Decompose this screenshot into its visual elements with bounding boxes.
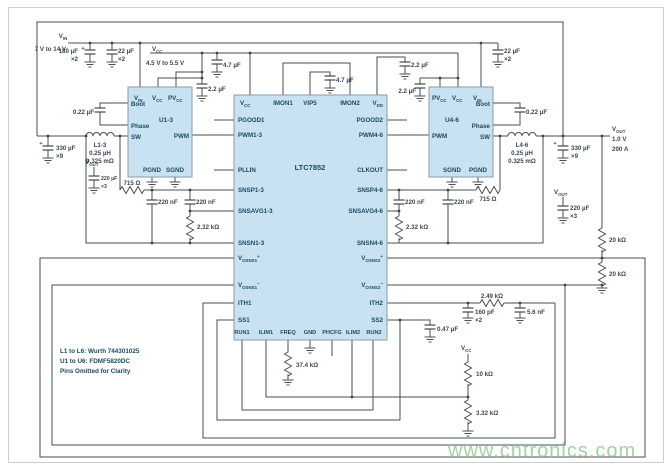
ic-pin-ith2: ITH2	[370, 300, 384, 307]
ic-pin-imon1: IMON1	[273, 100, 293, 107]
r10k-value: 10 kΩ	[476, 371, 493, 378]
ic-pin-snsn13: SNSN1-3	[238, 240, 265, 247]
ic-pin-ith1: ITH1	[238, 300, 252, 307]
r37k4-value: 37.4 kΩ	[296, 362, 318, 369]
ic-part-number: LTC7852	[295, 163, 326, 172]
ic-pin-run2: RUN2	[366, 330, 381, 336]
u13-pin-pwm: PWM	[174, 133, 189, 140]
ic-pin-ss1: SS1	[238, 317, 250, 324]
c180-value: 180 µF	[59, 48, 79, 55]
ic-pin-phcfg: PHCFG	[322, 330, 342, 336]
r715l-value: 715 Ω	[123, 180, 140, 187]
cboot-left-value: 0.22 µF	[73, 109, 94, 116]
u46-pin-pwm: PWM	[432, 133, 447, 140]
ic-pin-pgood1: PGOOD1	[238, 117, 265, 124]
ic-pin-snsp13: SNSP1-3	[238, 187, 264, 194]
c180-mult: ×2	[71, 56, 79, 63]
ic-pin-ilim1: ILIM1	[259, 330, 273, 336]
u46-pin-boot: Boot	[476, 101, 490, 108]
ic-pin-snsn46: SNSN4-6	[357, 240, 384, 247]
note-line-1: L1 to L6: Wurth 744301025	[60, 348, 140, 355]
ic-pin-freq: FREQ	[280, 330, 296, 336]
c220n-r2-value: 220 nF	[405, 199, 425, 206]
watermark: www.cntronics.com	[447, 440, 636, 462]
ic-pin-snsavg13: SNSAVG1-3	[238, 208, 273, 215]
u13-pin-sw: SW	[131, 134, 141, 141]
u46-pin-phase: Phase	[472, 123, 491, 130]
r715r-value: 715 Ω	[479, 196, 496, 203]
c160p-value: 160 pF	[475, 309, 495, 316]
u13-name: U1-3	[159, 117, 173, 124]
l46-name: L4-6	[516, 142, 529, 149]
c2u2l-value: 2.2 µF	[208, 86, 226, 93]
vout-voltage-label: 1.0 V	[612, 136, 627, 143]
l13-dcr: 0.325 mΩ	[86, 158, 114, 165]
c330l-value: 330 µF	[56, 145, 76, 152]
c180-polarity: +	[81, 46, 84, 52]
ic-pin-ilim2: ILIM2	[346, 330, 360, 336]
l46-value: 0.25 µH	[511, 150, 533, 157]
c160p-mult: ×2	[475, 317, 483, 324]
r20k2-value: 20 kΩ	[609, 271, 626, 278]
c22r-mult: ×2	[504, 56, 512, 63]
r20k1-value: 20 kΩ	[609, 237, 626, 244]
c5n6-value: 5.6 nF	[527, 309, 545, 316]
c4u7-vip5-value: 4.7 µF	[336, 77, 354, 84]
schematic-page: VIN 7 V to 14 V VCC 4.5 V to 5.5 V VOUT …	[0, 0, 671, 470]
c220n-r1-value: 220 nF	[454, 199, 474, 206]
l13-name: L1-3	[94, 142, 107, 149]
ic-pin-gnd: GND	[304, 330, 316, 336]
c220n-l2-value: 220 nF	[196, 199, 216, 206]
u13-pin-pgnd: PGND	[143, 167, 161, 174]
ic-pin-pllin: PLLIN	[238, 167, 256, 174]
c330l-mult: ×9	[56, 153, 64, 160]
u13-pin-phase: Phase	[131, 123, 150, 130]
note-line-2: U1 to U6: FDMF5820DC	[60, 358, 130, 365]
u13-pin-sgnd: SGND	[166, 167, 184, 174]
u46-pin-sw: SW	[480, 134, 490, 141]
c22l-value: 22 µF	[118, 48, 134, 55]
ic-pin-ss2: SS2	[371, 317, 383, 324]
c4u7l-value: 4.7 µF	[223, 62, 241, 69]
u46-pin-pgnd: PGND	[469, 167, 487, 174]
r2k49-value: 2.49 kΩ	[481, 293, 503, 300]
cboot-right-value: 0.22 µF	[526, 109, 547, 116]
ic-pin-pgood2: PGOOD2	[357, 117, 384, 124]
l13-value: 0.25 µH	[89, 150, 111, 157]
u13-pin-boot: Boot	[131, 101, 145, 108]
c330l-polarity: +	[39, 141, 42, 147]
r3k32-value: 3.32 kΩ	[476, 410, 498, 417]
ic-pin-pwm46: PWM4-6	[359, 132, 384, 139]
c330r-polarity: +	[553, 141, 556, 147]
ic-pin-snsavg46: SNSAVG4-6	[348, 208, 383, 215]
c2u2-vdd-value: 2.2 µF	[411, 62, 429, 69]
u46-pin-sgnd: SGND	[443, 167, 461, 174]
c220n-l1-value: 220 nF	[158, 199, 178, 206]
ic-pin-imon2: IMON2	[340, 100, 360, 107]
r2k32r-value: 2.32 kΩ	[406, 224, 428, 231]
note-line-3: Pins Omitted for Clarity	[60, 368, 131, 375]
ic-pin-run1: RUN1	[234, 330, 249, 336]
c330r-value: 330 µF	[571, 145, 591, 152]
c22l-mult: ×2	[118, 56, 126, 63]
vcc-range-label: 4.5 V to 5.5 V	[146, 60, 185, 67]
ic-pin-pwm13: PWM1-3	[238, 132, 263, 139]
u46-name: U4-6	[445, 117, 459, 124]
c470n-value: 0.47 µF	[437, 326, 458, 333]
ic-pin-snsp46: SNSP4-6	[357, 187, 383, 194]
c220r-mult: ×3	[570, 213, 578, 220]
ic-pin-clkout: CLKOUT	[357, 167, 383, 174]
ic-pin-vip5: VIP5	[303, 100, 317, 107]
c330r-mult: ×9	[571, 153, 579, 160]
l46-dcr: 0.325 mΩ	[508, 158, 536, 165]
vout-current-label: 200 A	[612, 146, 629, 153]
c220r-value: 220 µF	[570, 205, 590, 212]
c2u2r-value: 2.2 µF	[398, 88, 416, 95]
ltc7852-schematic: VIN 7 V to 14 V VCC 4.5 V to 5.5 V VOUT …	[0, 0, 671, 470]
r2k32l-value: 2.32 kΩ	[197, 224, 219, 231]
c220l-value: 220 µF	[101, 176, 117, 182]
c22r-value: 22 µF	[504, 48, 520, 55]
c220l-mult: ×3	[101, 184, 107, 190]
